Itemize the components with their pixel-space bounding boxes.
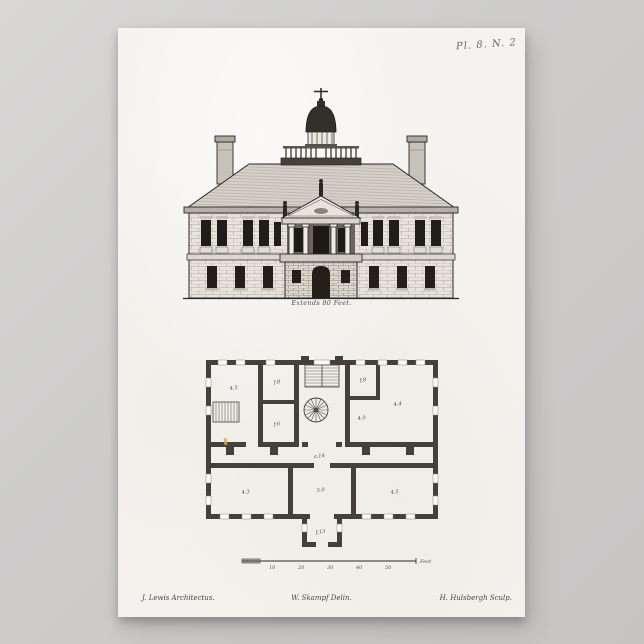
plan-label: a.14 (314, 453, 326, 460)
plan-label: 4.5 (389, 489, 399, 496)
roof-balustrade (281, 146, 361, 165)
scale-unit-label: Feet (419, 559, 432, 565)
entrance-door (312, 266, 330, 298)
architect-credit: J. Lewis Architectus. (142, 594, 215, 602)
plan-label: 4.4 (392, 401, 402, 408)
scale-tick: 50 (385, 565, 392, 571)
poster-print: Pl. 8. N. 2 (118, 28, 525, 617)
stair-flight (305, 365, 339, 387)
elevation-caption: Extends 80 Feet. (118, 299, 525, 307)
scale-bar: 10 20 30 40 50 Feet (242, 558, 432, 571)
scale-tick: 30 (327, 565, 334, 571)
scale-tick: 10 (269, 565, 276, 571)
plan-label: f.13 (314, 529, 325, 536)
scale-tick: 40 (355, 565, 363, 571)
spiral-stair (304, 398, 328, 422)
plan-label: 4.5 (228, 385, 238, 392)
scale-tick: 20 (297, 565, 305, 571)
delineator-credit: W. Skampf Delin. (291, 594, 352, 602)
plan-label: f.8 (272, 379, 280, 386)
product-backdrop: Pl. 8. N. 2 (0, 0, 644, 644)
plan-label: f.8 (358, 377, 366, 384)
plan-label: 4.0 (356, 415, 367, 422)
plan-label: 5.0 (316, 487, 326, 494)
plan-label: f.6 (272, 421, 281, 428)
wing-stair (213, 402, 239, 422)
engraver-credit: H. Hulsbergh Sculp. (440, 594, 512, 602)
cupola (305, 88, 337, 147)
engraving-credits: J. Lewis Architectus. W. Skampf Delin. H… (118, 594, 525, 608)
elevation-figure (181, 88, 461, 302)
plate-number: Pl. 8. N. 2 (456, 37, 527, 53)
floor-plan-figure: 4.5 f.8 f.6 f.8 4.4 4.0 a.14 4.3 5.0 4.5… (202, 356, 442, 571)
plan-label: 4.3 (240, 489, 250, 496)
